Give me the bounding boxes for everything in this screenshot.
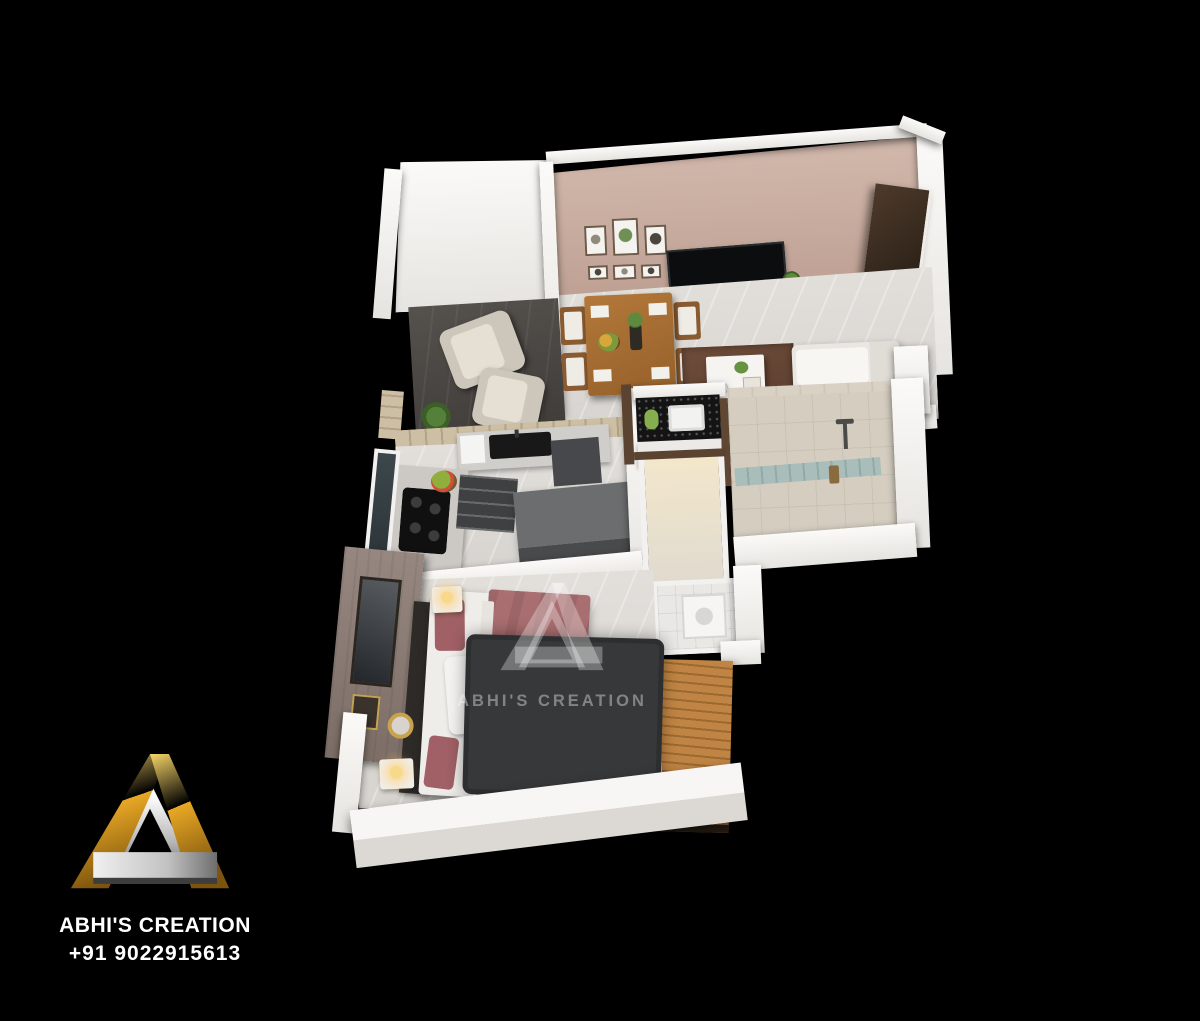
chair-cushion [566,357,585,386]
kitchen-cabinet-block [551,437,602,487]
dining-chair [560,306,588,345]
watermark: ABHI'S CREATION [452,566,652,726]
shower-icon [835,419,856,450]
footer-branding: ABHI'S CREATION +91 9022915613 [30,742,280,982]
footer-phone-text: +91 9022915613 [30,942,280,966]
wash-basin-icon [668,404,705,432]
picture-frame-icon [644,225,667,256]
soap-decor-icon [644,409,659,430]
poster-canvas: ABHI'S CREATION ABHI'S CREATI [0,0,1200,1021]
gas-hob-icon [398,487,451,555]
small-appliance-icon [459,434,487,466]
placemat [651,367,670,380]
footer-brand-text: ABHI'S CREATION [30,914,280,938]
dining-table [584,292,676,396]
fruit-bowl-icon [598,333,621,352]
vase-plant-icon [623,312,648,329]
kitchen-sink-icon [489,432,552,460]
bath-bottle-icon [829,465,840,483]
placemat [593,369,612,382]
kitchen-cabinet-front [456,474,518,532]
watermark-logo-icon [496,566,608,688]
shower-pipe [843,423,848,449]
dining-chair [562,352,590,391]
floorplan-scene [325,126,996,873]
bedside-table [379,758,414,789]
chair-cushion [564,311,583,340]
picture-frame-icon [612,218,640,256]
placemat [648,303,667,316]
decor-bowl-icon [734,361,749,374]
maroon-pillow [423,735,460,790]
picture-frame-icon [584,225,607,256]
picture-frame-icon [641,264,662,279]
chair-cushion [678,306,697,335]
table-lamp-icon [389,766,403,780]
watermark-text: ABHI'S CREATION [452,692,652,711]
mirror-icon [350,576,402,688]
shower-tray-icon [683,595,725,637]
kitchen-stone-pillar [378,390,404,440]
sofa-cushion [796,347,869,385]
dining-chair [673,301,701,340]
shower-head [836,419,854,425]
placemat [590,305,609,318]
picture-frame-icon [613,264,637,280]
faucet-icon [514,429,518,437]
brand-logo-icon [64,746,236,898]
armchair-cushion [481,374,529,423]
picture-frame-icon [588,265,609,280]
